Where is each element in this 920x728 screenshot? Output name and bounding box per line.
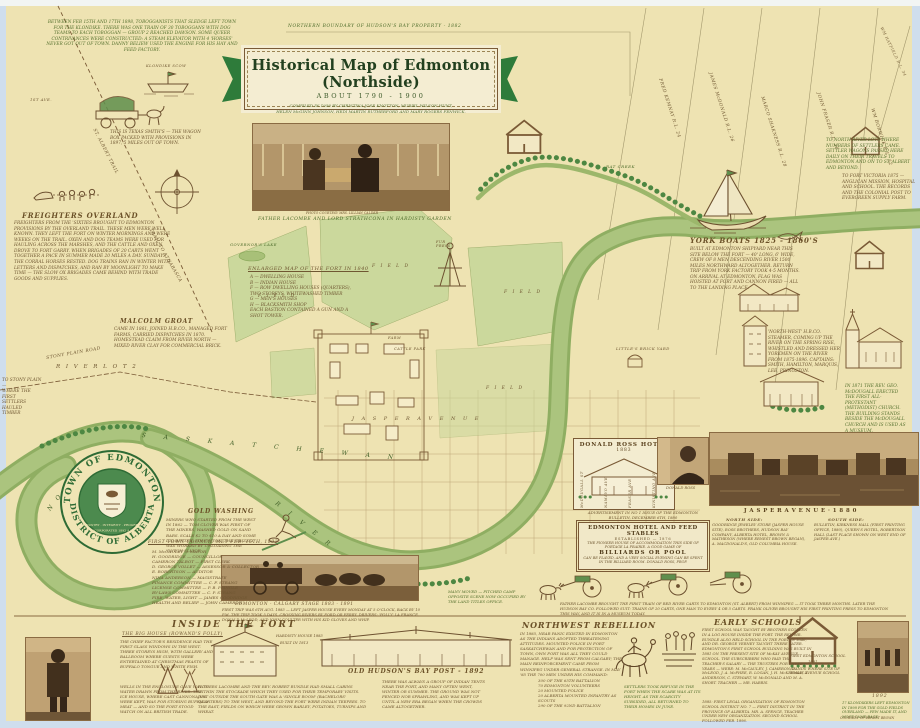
schools-text-2: 1885: FIRST LEGAL ORGANIZATION OF EDMONT… bbox=[702, 700, 812, 724]
lacombe-photo-caption: FATHER LACOMBE AND LORD STRATHCONA IN HA… bbox=[258, 217, 452, 222]
texas-smith-note: THIS IS TEXAS SMITH'S — THE WAGON BOX PA… bbox=[110, 130, 202, 147]
council-list: M. McCAULEY — MAYOR H. GOODRIDGE — COUNC… bbox=[152, 549, 334, 605]
pioneer-man-photo bbox=[26, 638, 90, 720]
hbc-post-title: OLD HUDSON'S BAY POST - 1892 bbox=[348, 668, 484, 675]
big-house-subtitle: THE BIG HOUSE (ROWAND'S FOLLY) bbox=[122, 632, 223, 637]
edmonton-hotel-ad: EDMONTON HOTEL AND FEED STABLES ESTABLIS… bbox=[578, 522, 708, 570]
ross-portrait-caption: DONALD ROSS bbox=[666, 486, 695, 490]
built-1813-caption: BUILT IN 1813 bbox=[280, 641, 308, 645]
ad-text-2: CAN BE PLAYED, AND A VERY SOCIAL EVENING… bbox=[579, 556, 707, 565]
mcdougall-church-illustration bbox=[846, 309, 903, 368]
first-ave-label: 1ST AVE. bbox=[30, 97, 52, 102]
rebellion-text: IN 1885, NEAR PANIC EXISTED IN EDMONTON … bbox=[520, 631, 622, 677]
historical-map-page: Historical Map of Edmonton (Northside) A… bbox=[0, 0, 920, 728]
pioneer-man-image bbox=[26, 638, 90, 720]
big-house-text-1: THE CHIEF FACTOR'S RESIDENCE HAD THE FIR… bbox=[120, 639, 216, 669]
early-schools-title: EARLY SCHOOLS bbox=[714, 617, 802, 627]
hbc-boundary-note: NORTHERN BOUNDARY OF HUDSON'S BAY PROPER… bbox=[288, 24, 461, 29]
brickyard-label: LITTLE'S BRICK YARD bbox=[616, 346, 670, 351]
jasper-1880-title: J A S P E R A V E N U E · 1 8 8 0 bbox=[744, 508, 857, 514]
dog-sled-illustration bbox=[34, 189, 99, 201]
refuge-note: SETTLERS TOOK REFUGE IN THE FORT WHEN TH… bbox=[624, 684, 702, 709]
freighters-title: FREIGHTERS OVERLAND bbox=[22, 211, 138, 220]
north-side-text: GOODRIDGE JEWELRY STORE (JASPER HOUSE SI… bbox=[712, 523, 808, 547]
map-title: Historical Map of Edmonton (Northside) bbox=[248, 57, 494, 91]
to-stony-plain-note: TO STONY PLAIN — WHERE THE FIRST SETTLER… bbox=[2, 378, 44, 417]
credits-line-1: COMPILED IN 1958 BY CHRISTINA JOSE KNOTT… bbox=[290, 103, 453, 108]
scow-label: KLONDIKE SCOW bbox=[146, 64, 186, 68]
lacombe-photo-image bbox=[253, 124, 449, 210]
ad-text-1: THE PIONEER HOUSE OF ACCOMMODATION THIS … bbox=[579, 541, 707, 550]
fort-fathers-text: FATHERS LACOMBE AND THE REV. ROBERT RUND… bbox=[198, 684, 370, 714]
river-lot-2-label: R I V E R L O T 2 bbox=[56, 364, 138, 370]
steamer-note: 'NORTH-WEST' H.B.CO. STEAMER, COMING UP … bbox=[768, 330, 840, 375]
street-label-2: FRASER AVE bbox=[628, 479, 632, 508]
gold-washing-text: MINERS WHO STARTED FROM THE WEST IN 1862… bbox=[166, 517, 260, 553]
fort-victoria-note: TO FORT VICTORIA 1875 — ANGLICAN MISSION… bbox=[842, 174, 916, 202]
street-label-0: McDOUGALL ST bbox=[580, 471, 584, 508]
hbc-post-text: THERE WAS ALWAYS A GROUP OF INDIAN TENTS… bbox=[382, 679, 490, 709]
fort-fields bbox=[228, 208, 564, 438]
field-label-2: F I E L D bbox=[372, 264, 410, 269]
hbc-post-illustration bbox=[320, 626, 512, 666]
texas-smith-wagon-illustration bbox=[96, 96, 164, 128]
inside-fort-title: INSIDE THE FORT bbox=[172, 620, 296, 630]
camp-note: MANY MOVED — PITCHED CAMP OPPOSITE SCENE… bbox=[448, 590, 534, 605]
crest-motto: INDUSTRY · INTEGRITY · PROGRESS bbox=[82, 523, 142, 527]
field-label-3: F I E L D bbox=[504, 290, 542, 295]
ad-title: EDMONTON HOTEL AND FEED STABLES bbox=[579, 525, 707, 537]
rebellion-title: NORTHWEST REBELLION bbox=[522, 620, 656, 630]
first-school-caption-1: FIRST EDMONTON SCHOOL bbox=[790, 654, 846, 658]
river-lot-cabin-icon bbox=[855, 242, 885, 269]
jasper-avenue-photo bbox=[710, 433, 918, 505]
street-label-3: KINISTINO AVE bbox=[652, 472, 656, 508]
first-school-caption-2: 1881 bbox=[808, 660, 817, 664]
ad-intro: ADVERTISEMENT IN NO 1 ISSUE OF THE EDMON… bbox=[580, 511, 706, 521]
north-side-title: NORTH SIDE: bbox=[726, 517, 763, 522]
malcolm-groat-title: MALCOLM GROAT bbox=[120, 318, 193, 325]
klondikers-1892-photo bbox=[858, 622, 908, 692]
map-credits: COMPILED IN 1958 BY CHRISTINA JOSE KNOTT… bbox=[248, 103, 494, 115]
brick-kiln-illustration bbox=[628, 355, 642, 367]
fort-legend-title: ENLARGED MAP OF THE FORT IN 1840 bbox=[248, 266, 369, 272]
fur-press-label: FUR PRESS bbox=[436, 240, 446, 248]
donald-ross-portrait bbox=[658, 438, 708, 484]
title-banner: Historical Map of Edmonton (Northside) A… bbox=[244, 48, 498, 110]
south-side-title: SOUTH SIDE: bbox=[828, 517, 864, 522]
red-river-cart-train-illustration bbox=[540, 572, 751, 600]
credits-line-2: HELEN McGINN JOHNSON, HEDI MARTIN RUTHER… bbox=[276, 109, 466, 114]
rebellion-list: 300 OF THE 65TH BATTALION 70 EDMONTON VO… bbox=[538, 678, 630, 708]
mcdougall-church-note: IN 1871 THE REV. GEO. McDOUGALL ERECTED … bbox=[845, 384, 909, 434]
hardisty-house-caption: HARDISTY HOUSE 1883 bbox=[276, 634, 323, 638]
york-boats-title: YORK BOATS 1825 - 1860'S bbox=[690, 236, 818, 245]
settler-group-illustration bbox=[662, 632, 696, 666]
rat-creek bbox=[478, 165, 700, 224]
photo-credit: COURTESY OF ERNEST BROWN bbox=[840, 716, 894, 720]
lacombe-strathcona-photo bbox=[253, 124, 449, 210]
malcolm-groat-text: CAME IN 1861, JOINED H.B.CO., MANAGED FO… bbox=[114, 327, 232, 349]
tall-house-illustration bbox=[742, 316, 768, 366]
field-label-4: F I E L D bbox=[486, 386, 524, 391]
north-lots-note: TO NORTH RIVER LOTS WHERE NUMBERS OF SET… bbox=[826, 138, 914, 171]
big-house-text-2: WELLS IN THE ENCLOSURE GAVE WAY TO WATER… bbox=[120, 684, 210, 714]
crest-shield bbox=[98, 484, 126, 518]
title-banner-inner: Historical Map of Edmonton (Northside) A… bbox=[247, 51, 495, 107]
settler-cabin-icon bbox=[506, 121, 542, 153]
governors-lake-label: GOVERNOR'S LAKE bbox=[230, 242, 277, 247]
street-label-1: NAMAYO AVE bbox=[604, 477, 608, 508]
compass-rose-icon bbox=[155, 170, 199, 214]
crest-incorporated: INCORPORATED 1892 A.D. bbox=[90, 529, 133, 533]
klondike-note: BETWEEN FEB 15TH AND 17TH 1898, TOBOGGAN… bbox=[46, 20, 238, 53]
red-river-carts-note: FATHER LACOMBE BROUGHT THE FIRST TRAIN O… bbox=[560, 602, 890, 616]
klondike-scow-illustration bbox=[144, 72, 194, 96]
stage-caption-title: EDMONTON - CALGARY STAGE 1883 - 1891 bbox=[235, 602, 354, 607]
klondikers-image bbox=[858, 622, 908, 692]
first-school-caption-3: STANDS WHERE SITE OF McKAY AVENUE SCHOOL bbox=[786, 667, 844, 675]
lacombe-photo-credit: PHOTO COURTESY MRS. LILLIAN CALDER bbox=[306, 211, 378, 215]
cattle-park-label: CATTLE PARK bbox=[394, 347, 426, 351]
york-boats-text: BUILT AT EDMONTON SHIPYARD NEAR THIS SIT… bbox=[690, 247, 802, 292]
fort-plan bbox=[314, 322, 428, 460]
photo-1892-year: 1892 bbox=[872, 694, 888, 699]
jasper-avenue-label: J A S P E R A V E N U E bbox=[352, 416, 481, 422]
governors-lake-shape bbox=[239, 251, 265, 261]
ross-portrait-image bbox=[658, 438, 708, 484]
field-label-1: F I E L D bbox=[258, 294, 296, 299]
gold-washing-title: GOLD WASHING bbox=[188, 508, 254, 515]
jasper-photo-image bbox=[710, 433, 918, 505]
south-side-text: BULLETIN, KIRKNESS HALL (FIRST PRINTING … bbox=[814, 523, 914, 542]
rat-creek-label: RAT CREEK bbox=[606, 164, 635, 169]
map-subtitle: ABOUT 1790 - 1900 bbox=[248, 92, 494, 100]
farm-label: FARM bbox=[388, 336, 401, 340]
